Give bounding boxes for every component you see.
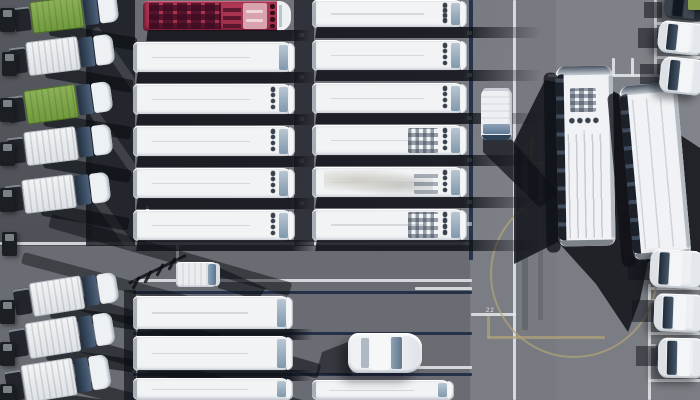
- bus-nose: [461, 126, 467, 155]
- parked-coach-bus: [133, 84, 295, 115]
- parked-car: [658, 338, 700, 379]
- bus-windshield: [451, 3, 460, 25]
- cast-shadow: [315, 240, 542, 251]
- bus-rear-edge: [312, 127, 316, 154]
- bus-roof-seam: [152, 353, 248, 355]
- trailer-equipment: [0, 342, 15, 366]
- front-windshield-line: [279, 5, 282, 27]
- bus-roof-vent-circle: [443, 134, 448, 139]
- bus-roof-vent-circle: [593, 118, 598, 123]
- truck-windshield: [82, 0, 99, 25]
- bus-roof-vent-circle: [271, 105, 276, 110]
- red-bus-white-front: [277, 1, 291, 31]
- bus-rear-edge: [312, 382, 316, 398]
- bus-rear-edge: [133, 86, 137, 113]
- bus-rear-edge: [312, 42, 316, 69]
- cast-shadow: [146, 30, 312, 41]
- van-rear-edge: [483, 88, 510, 91]
- car-trunk: [691, 25, 700, 54]
- bus-roof-vent-circle: [443, 224, 448, 229]
- bus-rear-edge: [560, 240, 613, 247]
- bus-roof-vent-circle: [271, 141, 276, 146]
- equipment-top: [5, 234, 14, 241]
- bus-roof-seam: [152, 57, 249, 59]
- trailer-equipment: [2, 52, 17, 76]
- equipment-top: [3, 144, 12, 151]
- cast-shadow: [136, 198, 316, 209]
- truck-cab-roof: [91, 81, 114, 113]
- parked-coach-bus: [312, 125, 467, 156]
- bus-roof-seam: [331, 98, 424, 100]
- bus-nose: [289, 169, 295, 198]
- bus-roof-vent-circle: [271, 183, 276, 188]
- cast-shadow: [632, 300, 654, 322]
- bus-roof-seam: [152, 389, 248, 391]
- parked-coach-bus: [133, 42, 295, 73]
- car-nose: [658, 340, 667, 376]
- bus-windshield: [279, 171, 288, 196]
- red-bus-vent-circle: [270, 24, 275, 29]
- bus-nose: [448, 381, 454, 399]
- bus-roof-vent-circle: [443, 188, 448, 193]
- car-roof: [677, 24, 692, 53]
- bus-nose: [461, 41, 467, 70]
- bus-roof-hatch-grid: [408, 212, 438, 238]
- parked-coach-bus: [133, 296, 293, 330]
- white-car: [348, 333, 422, 373]
- cast-shadow: [640, 64, 660, 84]
- car-roof: [669, 252, 683, 287]
- bus-nose: [461, 210, 467, 240]
- truck-cargo-body: [23, 126, 79, 166]
- cast-shadow: [636, 346, 658, 366]
- bus-roof-vent-circle: [443, 61, 448, 66]
- car-trunk: [692, 296, 700, 330]
- bus-rear-edge: [312, 169, 316, 196]
- car-roof: [370, 336, 390, 370]
- bus-nose: [461, 84, 467, 113]
- bus-windshield: [279, 45, 288, 70]
- equipment-top: [3, 100, 12, 107]
- bus-nose: [287, 297, 293, 329]
- parked-minibus: [176, 262, 220, 287]
- bus-windshield: [279, 87, 288, 112]
- bus-rear-edge: [312, 211, 316, 239]
- bus-roof-vent-circle: [443, 3, 448, 8]
- van-windshield: [483, 124, 510, 134]
- parking-line-white: [415, 287, 472, 290]
- bus-roof-seam: [331, 55, 424, 57]
- bus-roof-vent-circle: [443, 92, 448, 97]
- bus-nose: [289, 127, 295, 156]
- truck-cab-roof: [91, 124, 114, 156]
- cast-shadow: [315, 70, 542, 81]
- parked-coach-bus: [133, 336, 293, 371]
- truck-cab-roof: [93, 34, 116, 66]
- bus-roof-vent-circle: [271, 99, 276, 104]
- cast-shadow: [315, 155, 542, 166]
- bus-windshield: [438, 383, 447, 397]
- bus-roof-hatch-grid: [570, 88, 596, 112]
- bus-roof-seam: [152, 312, 248, 314]
- truck-cargo-body: [21, 174, 77, 214]
- bus-roof-hatch-grid: [408, 128, 438, 153]
- parking-line-tan: [487, 316, 490, 338]
- bus-roof-seam: [152, 183, 249, 185]
- bay-number-mark: [467, 222, 472, 226]
- equipment-top: [3, 344, 12, 351]
- parked-car: [656, 20, 700, 57]
- bus-roof-vent-circle: [569, 118, 574, 123]
- cast-shadow: [136, 114, 316, 125]
- bus-nose: [289, 85, 295, 114]
- bus-rear-edge: [312, 85, 316, 112]
- trailer-equipment: [0, 384, 15, 400]
- pink-panel-slot: [246, 19, 263, 23]
- parked-coach-bus: [312, 167, 467, 198]
- red-bus-hatch-grid: [149, 3, 221, 29]
- trailer-equipment: [0, 8, 15, 32]
- bus-roof-vent-circle: [271, 231, 276, 236]
- bus-roof-vent-circle: [443, 98, 448, 103]
- painted-bay-number: 22: [486, 308, 495, 314]
- bus-windshield: [451, 170, 460, 195]
- bus-roof-vent-circle: [271, 147, 276, 152]
- bus-rear-edge: [133, 298, 137, 328]
- bus-roof-seam: [152, 141, 249, 143]
- red-bus-pink-panel: [243, 3, 267, 29]
- truck-cargo-body: [25, 36, 81, 76]
- bus-roof-vent-circle: [585, 118, 590, 123]
- parked-coach-bus: [133, 126, 295, 157]
- bus-roof-vent-circle: [443, 18, 448, 23]
- parked-coach-bus: [312, 209, 467, 241]
- bus-nose: [287, 379, 293, 399]
- bus-roof-vent-circle: [271, 189, 276, 194]
- bus-front-cap: [557, 66, 610, 76]
- bus-windshield: [279, 129, 288, 154]
- car-roof: [673, 296, 686, 330]
- truck-cab-roof: [89, 172, 112, 204]
- van-front-bumper: [482, 135, 511, 140]
- parked-car: [653, 293, 700, 333]
- car-windshield: [658, 252, 670, 284]
- aerial-parking-lot-photo: 22: [0, 0, 700, 400]
- red-bus-vent-circle: [270, 17, 275, 22]
- bus-roof-vent-circle: [443, 43, 448, 48]
- parked-coach-bus: [133, 168, 295, 199]
- cast-shadow: [644, 2, 662, 18]
- pink-panel-slot: [246, 10, 263, 14]
- bus-roof-vent-circle: [271, 135, 276, 140]
- bus-nose: [461, 1, 467, 27]
- parked-coach-bus: [133, 378, 293, 400]
- car-hood: [403, 336, 420, 370]
- trailer-equipment: [0, 142, 15, 166]
- parked-coach-bus: [133, 210, 295, 241]
- bus-roof-seam: [329, 390, 414, 392]
- bus-roof-hatch-grid: [414, 171, 438, 194]
- bus-roof-vent-circle: [271, 171, 276, 176]
- car-trunk: [690, 253, 700, 288]
- equipment-top: [3, 302, 12, 309]
- bus-roof-seam: [152, 225, 249, 227]
- bus-roof-vent-circle: [577, 118, 582, 123]
- parked-car: [658, 56, 700, 96]
- bus-side-windows: [556, 74, 567, 240]
- parked-coach-bus: [312, 40, 467, 71]
- bus-rear-edge: [133, 170, 137, 197]
- bus-roof-vent-circle: [443, 13, 448, 18]
- red-bus-vent-circle: [270, 4, 275, 9]
- bus-roof-vent-circle: [443, 176, 448, 181]
- bus-rear-edge: [133, 44, 137, 71]
- bus-roof-vent-circle: [443, 55, 448, 60]
- bus-roof-seam: [331, 13, 424, 15]
- bus-roof-seam: [152, 99, 249, 101]
- bus-roof-vent-circle: [271, 213, 276, 218]
- car-roof: [678, 340, 691, 376]
- cast-shadow: [315, 27, 542, 38]
- bus-nose: [289, 211, 295, 240]
- car-nose: [653, 295, 662, 329]
- cast-shadow: [315, 197, 542, 208]
- parked-coach-bus: [312, 0, 467, 28]
- equipment-top: [3, 190, 12, 197]
- bus-windshield: [277, 381, 286, 397]
- car-windshield: [667, 341, 678, 375]
- parking-line-white: [648, 379, 700, 382]
- bus-windshield: [451, 86, 460, 111]
- bus-windshield: [451, 43, 460, 68]
- trailer-equipment: [2, 232, 17, 256]
- truck-cargo-body: [20, 357, 77, 400]
- bus-roof-vent-circle: [443, 104, 448, 109]
- trailer-equipment: [0, 98, 15, 122]
- minibus-nose: [216, 263, 220, 286]
- bus-windshield: [451, 128, 460, 153]
- trailer-equipment: [0, 300, 15, 324]
- trailer-equipment: [0, 188, 15, 212]
- bus-roof-vent-circle: [443, 146, 448, 151]
- bus-rear-edge: [312, 2, 316, 26]
- bus-roof-vent-circle: [443, 230, 448, 235]
- car-windshield: [662, 296, 673, 328]
- bus-roof-vent-circle: [271, 129, 276, 134]
- bus-windshield: [277, 339, 286, 368]
- minibus-windshield: [208, 264, 216, 285]
- vertical-coach-bus: [619, 82, 692, 260]
- bus-roof-vent-circle: [443, 86, 448, 91]
- bus-roof-vent-circle: [443, 49, 448, 54]
- bus-windshield: [451, 212, 460, 238]
- equipment-top: [3, 10, 12, 17]
- bus-roof-vent-circle: [443, 128, 448, 133]
- bus-roof-vent-circle: [271, 225, 276, 230]
- bus-nose: [287, 337, 293, 370]
- bus-nose: [289, 43, 295, 72]
- car-rear-window: [361, 338, 369, 368]
- trailer-equipment: [688, 0, 700, 10]
- bus-rear-edge: [133, 380, 137, 398]
- bus-roof-vent-circle: [443, 218, 448, 223]
- parked-coach-bus: [312, 83, 467, 114]
- equipment-top: [3, 386, 12, 393]
- parked-coach-bus: [312, 380, 454, 400]
- bus-rear-edge: [133, 128, 137, 155]
- red-bus-vent-circle: [270, 11, 275, 16]
- cast-shadow: [638, 28, 658, 48]
- bus-windshield: [279, 213, 288, 238]
- parked-car: [649, 249, 700, 290]
- cast-shadow: [522, 140, 528, 330]
- truck-rear-chassis: [13, 6, 32, 32]
- cast-shadow: [136, 156, 316, 167]
- parking-line-white: [631, 58, 634, 76]
- cast-shadow: [538, 120, 543, 320]
- bus-roof-ribs: [568, 134, 609, 239]
- parking-line-tan: [487, 336, 605, 339]
- bus-roof-vent-circle: [443, 140, 448, 145]
- bus-roof-vent-circle: [443, 170, 448, 175]
- red-roof-bus: [143, 1, 291, 31]
- bus-rear-edge: [133, 338, 137, 369]
- red-bus-vent-slats: [223, 4, 241, 28]
- parking-line-navy: [133, 291, 472, 294]
- cast-shadow: [136, 240, 316, 251]
- bus-roof-vent-circle: [271, 93, 276, 98]
- bus-windshield: [277, 299, 286, 327]
- truck-cab-roof: [97, 0, 119, 24]
- parked-van: [481, 88, 512, 140]
- parked-truck: [12, 0, 115, 36]
- parking-line-navy: [469, 0, 473, 260]
- car-windshield: [391, 337, 402, 369]
- bus-roof-vent-circle: [443, 182, 448, 187]
- vertical-coach-bus: [555, 66, 615, 247]
- bus-roof-vent-circle: [271, 87, 276, 92]
- cast-shadow: [136, 72, 316, 83]
- bus-roof-vent-circle: [443, 212, 448, 217]
- equipment-top: [5, 54, 14, 61]
- bus-nose: [461, 168, 467, 197]
- bus-roof-vent-circle: [443, 8, 448, 13]
- bus-roof-vent-circle: [271, 177, 276, 182]
- truck-cargo-body: [23, 84, 79, 125]
- bus-roof-vent-circle: [271, 219, 276, 224]
- bus-rear-edge: [133, 212, 137, 239]
- car-trunk: [693, 340, 700, 376]
